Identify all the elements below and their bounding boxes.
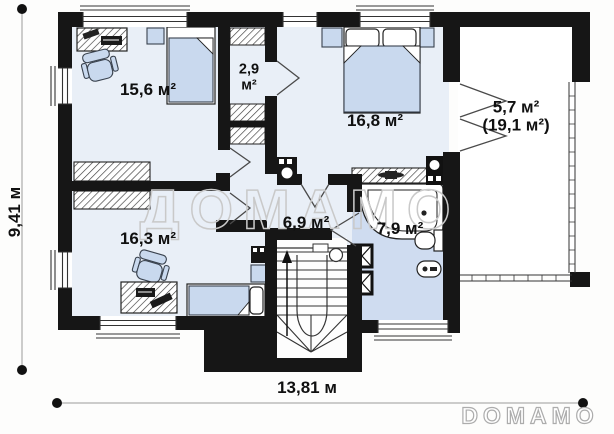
room-label-closet: 2,9 м² [239, 62, 259, 93]
floor-plan-canvas: ДОМАМО 15,6 м² 2,9 м² 16,8 м² 5,7 м² (19… [0, 0, 614, 434]
window-icon [374, 320, 452, 340]
room-label-terrace-total: (19,1 м²) [482, 117, 549, 135]
dimension-label-width: 13,81 м [277, 378, 337, 398]
room-label-bedroom: 16,8 м² [347, 112, 403, 130]
room-label-study-top: 15,6 м² [120, 81, 176, 99]
window-icon [283, 12, 317, 27]
room-label-terrace-area: 5,7 м² [482, 99, 549, 117]
room-label-closet-value: 2,9 [239, 62, 259, 78]
room-label-terrace: 5,7 м² (19,1 м²) [482, 99, 549, 136]
window-icon [51, 66, 72, 106]
window-icon [51, 250, 72, 290]
newel-post-icon [330, 249, 343, 262]
nightstand-icon [251, 265, 267, 282]
room-label-study-bottom: 16,3 м² [120, 230, 176, 248]
bidet-icon [417, 261, 441, 277]
window-icon [356, 6, 434, 27]
nightstand-icon [322, 28, 342, 47]
room-label-hall: 6,9 м² [283, 214, 330, 232]
window-icon [80, 6, 190, 27]
vent-block-icon [251, 246, 267, 263]
dimension-label-height: 9,41 м [5, 187, 25, 237]
room-label-bathroom: 7,9 м² [377, 220, 424, 238]
room-label-closet-unit: м² [239, 78, 259, 94]
window-icon [96, 316, 180, 338]
nightstand-icon [147, 28, 164, 44]
double-bed-icon [344, 27, 420, 113]
brand-logo: DOMAMO [461, 403, 598, 430]
single-bed-icon [187, 284, 265, 317]
